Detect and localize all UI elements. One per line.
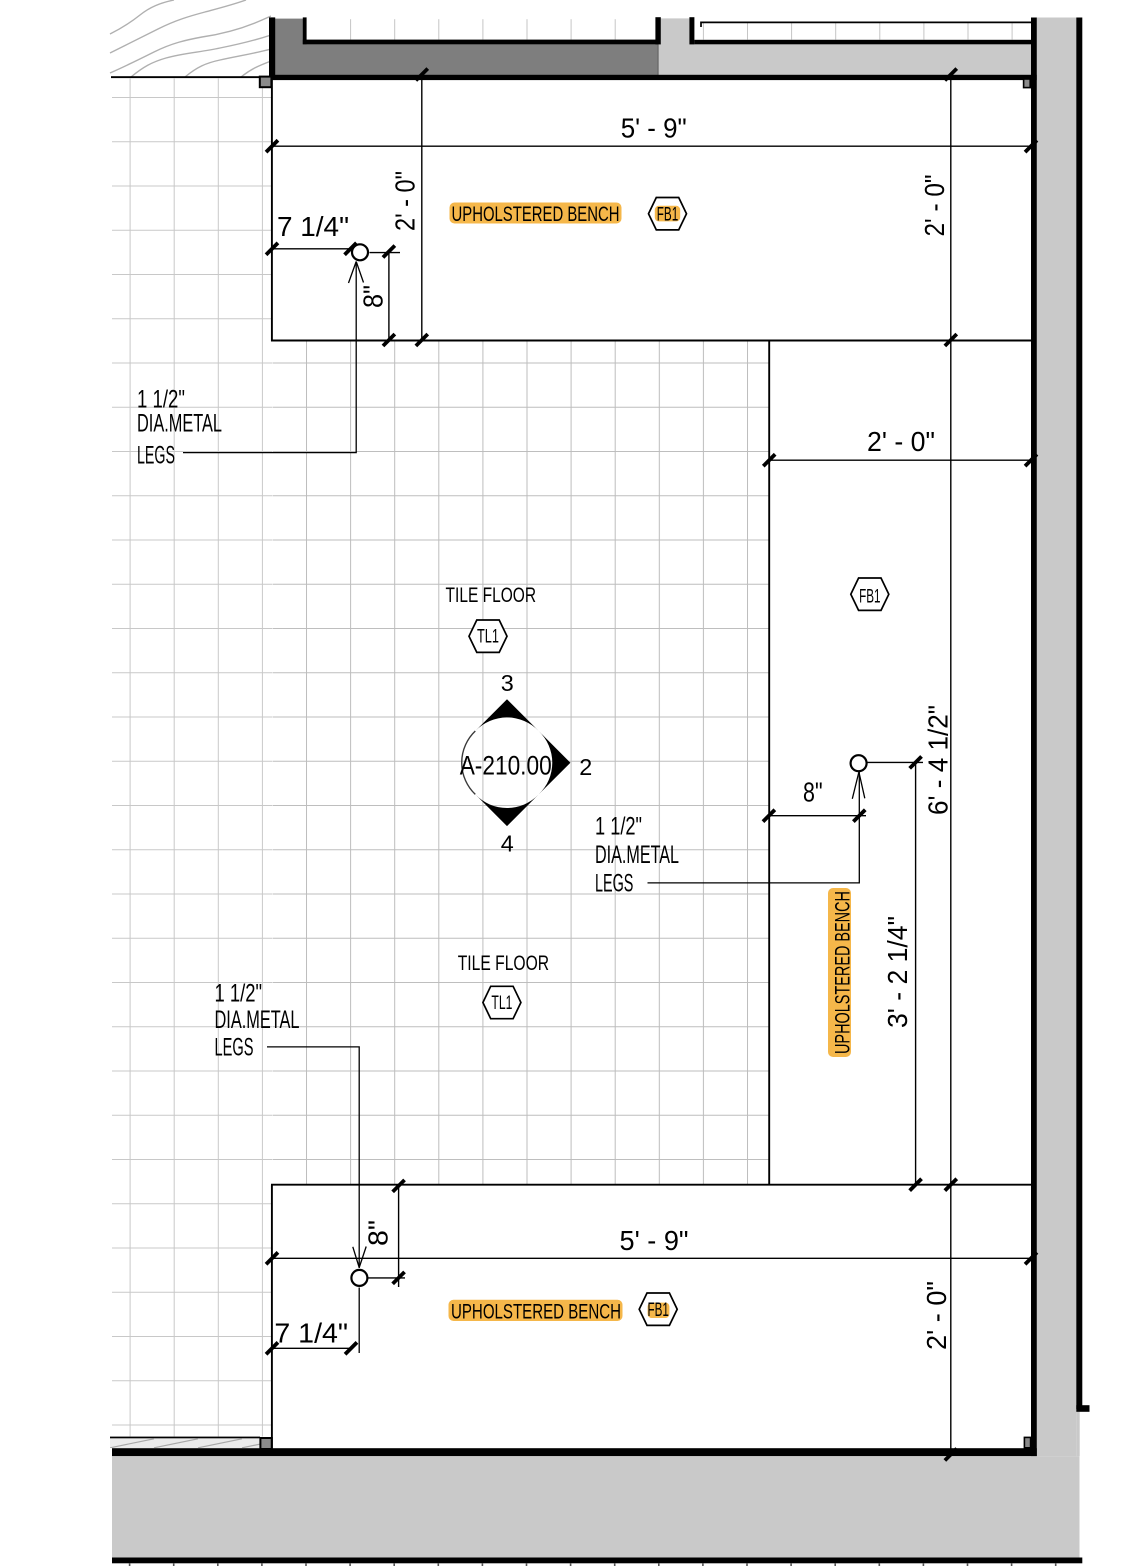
- svg-text:A-210.00: A-210.00: [460, 750, 552, 780]
- svg-text:TL1: TL1: [491, 993, 512, 1014]
- svg-text:LEGS: LEGS: [215, 1033, 254, 1061]
- svg-text:7 1/4": 7 1/4": [274, 1318, 348, 1349]
- svg-text:DIA.METAL: DIA.METAL: [137, 410, 222, 438]
- svg-text:7 1/4": 7 1/4": [277, 211, 349, 242]
- svg-text:DIA.METAL: DIA.METAL: [215, 1006, 300, 1034]
- svg-text:8": 8": [358, 285, 389, 308]
- svg-text:UPHOLSTERED BENCH: UPHOLSTERED BENCH: [451, 1301, 621, 1324]
- svg-text:DIA.METAL: DIA.METAL: [595, 841, 679, 869]
- svg-text:TILE FLOOR: TILE FLOOR: [446, 583, 537, 607]
- svg-text:1 1/2": 1 1/2": [215, 980, 263, 1008]
- svg-text:2' - 0": 2' - 0": [390, 171, 421, 231]
- svg-text:3: 3: [501, 670, 514, 696]
- svg-text:5' - 9": 5' - 9": [621, 113, 687, 144]
- svg-text:2' - 0": 2' - 0": [919, 175, 950, 237]
- svg-text:FB1: FB1: [657, 204, 679, 225]
- svg-text:FB1: FB1: [859, 587, 880, 608]
- svg-text:2: 2: [579, 754, 592, 780]
- svg-text:UPHOLSTERED BENCH: UPHOLSTERED BENCH: [452, 203, 620, 226]
- svg-text:1 1/2": 1 1/2": [595, 813, 642, 841]
- svg-text:LEGS: LEGS: [595, 869, 633, 897]
- svg-text:2' - 0": 2' - 0": [921, 1281, 952, 1350]
- svg-text:3' - 2 1/4": 3' - 2 1/4": [882, 916, 913, 1028]
- svg-text:TILE FLOOR: TILE FLOOR: [458, 951, 549, 975]
- svg-text:6' - 4 1/2": 6' - 4 1/2": [923, 705, 954, 815]
- svg-text:5' - 9": 5' - 9": [620, 1225, 689, 1256]
- svg-text:FB1: FB1: [648, 1300, 669, 1321]
- svg-text:2' - 0": 2' - 0": [867, 426, 935, 457]
- svg-text:8": 8": [803, 776, 823, 807]
- svg-text:LEGS: LEGS: [137, 442, 175, 470]
- svg-text:4: 4: [501, 830, 514, 856]
- svg-text:UPHOLSTERED BENCH: UPHOLSTERED BENCH: [832, 891, 855, 1054]
- svg-text:8": 8": [363, 1220, 394, 1246]
- svg-text:TL1: TL1: [477, 627, 499, 648]
